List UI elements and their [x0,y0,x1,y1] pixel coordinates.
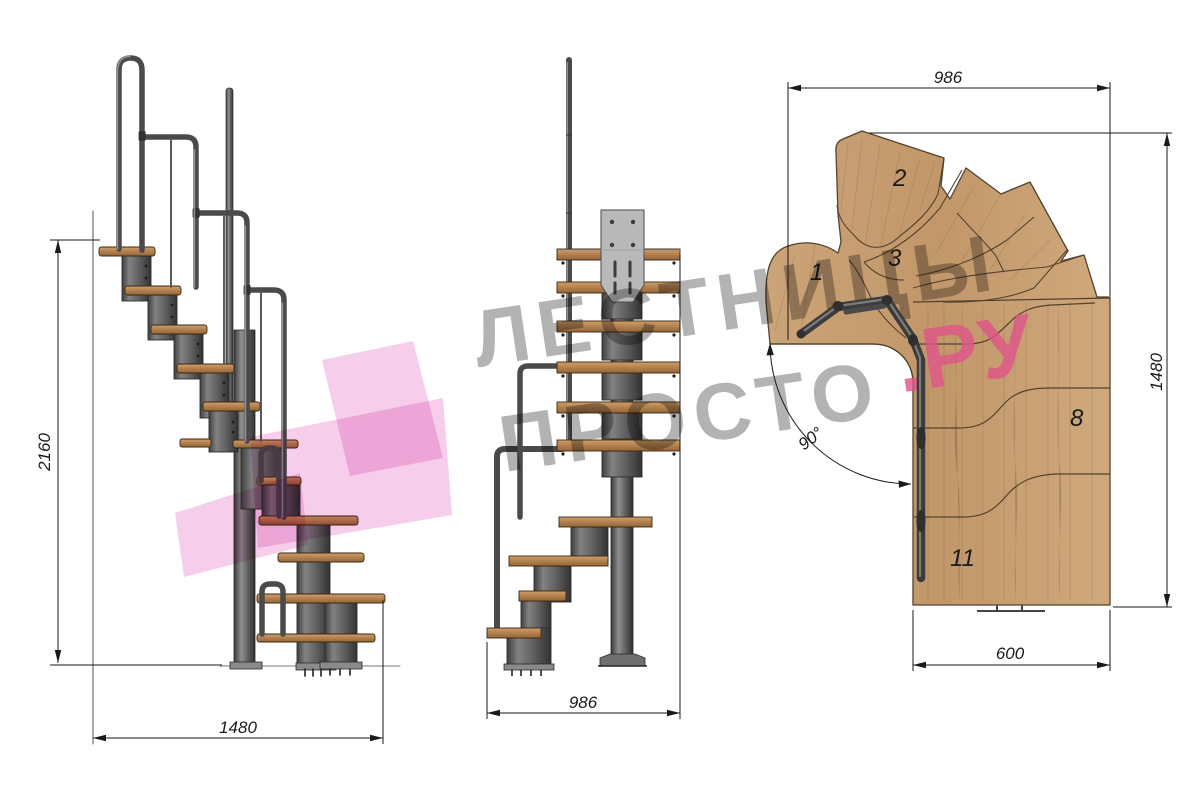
svg-text:986: 986 [569,693,598,712]
svg-text:600: 600 [996,644,1025,663]
svg-text:11: 11 [950,545,975,572]
svg-text:1480: 1480 [1147,353,1166,391]
svg-text:986: 986 [934,68,963,87]
svg-text:.РУ: .РУ [889,296,1041,412]
svg-text:2: 2 [892,165,906,192]
svg-text:2160: 2160 [35,433,54,472]
svg-text:8: 8 [1070,405,1084,432]
svg-text:1480: 1480 [219,718,257,737]
